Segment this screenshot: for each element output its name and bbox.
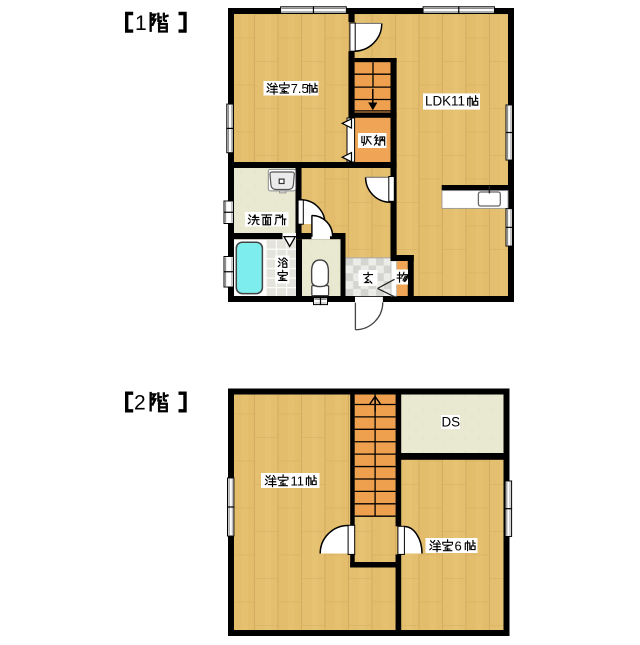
svg-text:LDK11: LDK11 [425,94,465,109]
svg-text:6: 6 [455,538,462,553]
svg-text:11: 11 [291,473,305,488]
svg-text:2: 2 [134,392,146,415]
svg-text:7.5: 7.5 [291,81,309,96]
svg-text:DS: DS [442,415,461,430]
svg-text:1: 1 [135,12,147,35]
